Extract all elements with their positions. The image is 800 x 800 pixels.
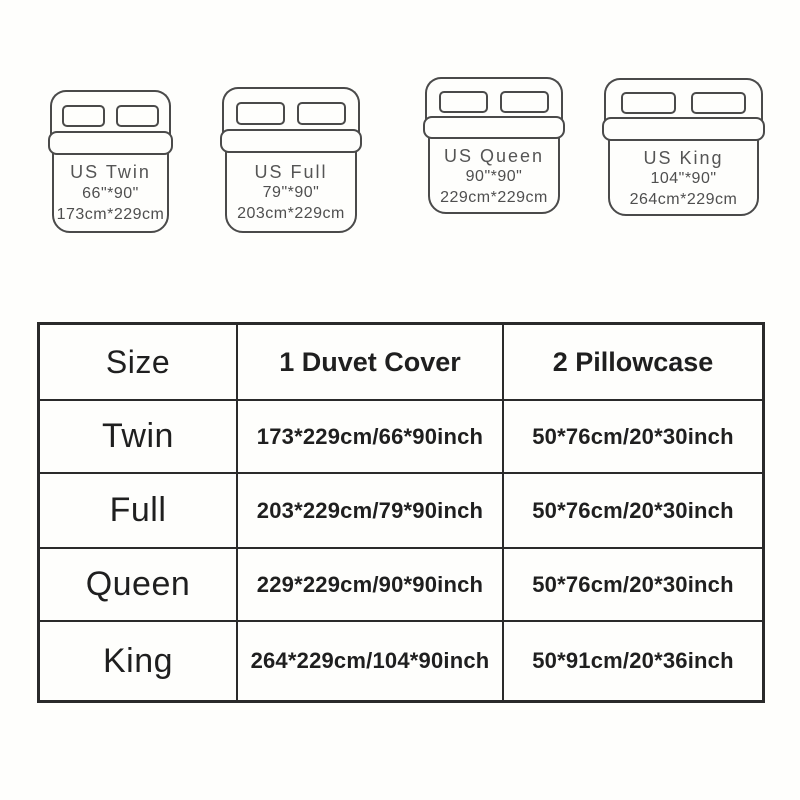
duvet-body: US Twin 66"*90" 173cm*229cm	[52, 147, 168, 233]
table-row-full-pillowcase: 50*76cm/20*30inch	[504, 474, 762, 549]
table-header-size: Size	[40, 325, 238, 401]
bed-size-inches: 66"*90"	[82, 184, 139, 205]
table-row-twin-duvet: 173*229cm/66*90inch	[238, 401, 504, 474]
table-row-king-pillowcase: 50*91cm/20*36inch	[504, 622, 762, 700]
bed-size-name: US Twin	[70, 162, 151, 184]
bed-size-inches: 104"*90"	[650, 169, 716, 190]
pillow-icon	[297, 102, 345, 125]
duvet-body: US Full 79"*90" 203cm*229cm	[225, 145, 357, 233]
bed-diagram-us-king: US King 104"*90" 264cm*229cm	[602, 78, 765, 216]
bed-size-name: US King	[643, 148, 723, 170]
table-header-pillowcase: 2 Pillowcase	[504, 325, 762, 401]
table-row-full-duvet: 203*229cm/79*90inch	[238, 474, 504, 549]
table-row-full-size: Full	[40, 474, 238, 549]
pillow-icon	[439, 91, 487, 112]
pillow-icon	[62, 105, 105, 127]
table-header-duvet-cover: 1 Duvet Cover	[238, 325, 504, 401]
duvet-body: US Queen 90"*90" 229cm*229cm	[428, 132, 560, 214]
pillow-icon	[500, 91, 548, 112]
bed-size-inches: 90"*90"	[466, 167, 523, 188]
duvet-fold-band	[220, 129, 362, 154]
pillow-icon	[236, 102, 284, 125]
table-row-queen-size: Queen	[40, 549, 238, 622]
bed-diagram-us-full: US Full 79"*90" 203cm*229cm	[220, 87, 362, 233]
pillow-icon	[691, 92, 746, 113]
duvet-fold-band	[48, 131, 173, 155]
bed-size-name: US Full	[254, 162, 327, 184]
table-row-king-size: King	[40, 622, 238, 700]
bed-size-cm: 173cm*229cm	[57, 205, 165, 226]
table-row-queen-duvet: 229*229cm/90*90inch	[238, 549, 504, 622]
bedding-size-chart: US Twin 66"*90" 173cm*229cm US Full 79"*…	[0, 0, 800, 800]
pillow-icon	[116, 105, 159, 127]
table-row-king-duvet: 264*229cm/104*90inch	[238, 622, 504, 700]
bed-size-cm: 264cm*229cm	[630, 190, 738, 211]
bed-diagram-us-twin: US Twin 66"*90" 173cm*229cm	[48, 90, 173, 233]
table-row-queen-pillowcase: 50*76cm/20*30inch	[504, 549, 762, 622]
bed-diagram-us-queen: US Queen 90"*90" 229cm*229cm	[423, 77, 565, 214]
duvet-fold-band	[423, 116, 565, 139]
bed-size-cm: 229cm*229cm	[440, 188, 548, 209]
size-table: Size 1 Duvet Cover 2 Pillowcase Twin 173…	[37, 322, 765, 703]
bed-size-inches: 79"*90"	[263, 183, 320, 204]
pillow-icon	[621, 92, 676, 113]
bed-size-cm: 203cm*229cm	[237, 204, 345, 225]
duvet-body: US King 104"*90" 264cm*229cm	[608, 133, 760, 216]
duvet-fold-band	[602, 117, 765, 140]
bed-size-name: US Queen	[444, 146, 544, 168]
table-row-twin-pillowcase: 50*76cm/20*30inch	[504, 401, 762, 474]
table-row-twin-size: Twin	[40, 401, 238, 474]
